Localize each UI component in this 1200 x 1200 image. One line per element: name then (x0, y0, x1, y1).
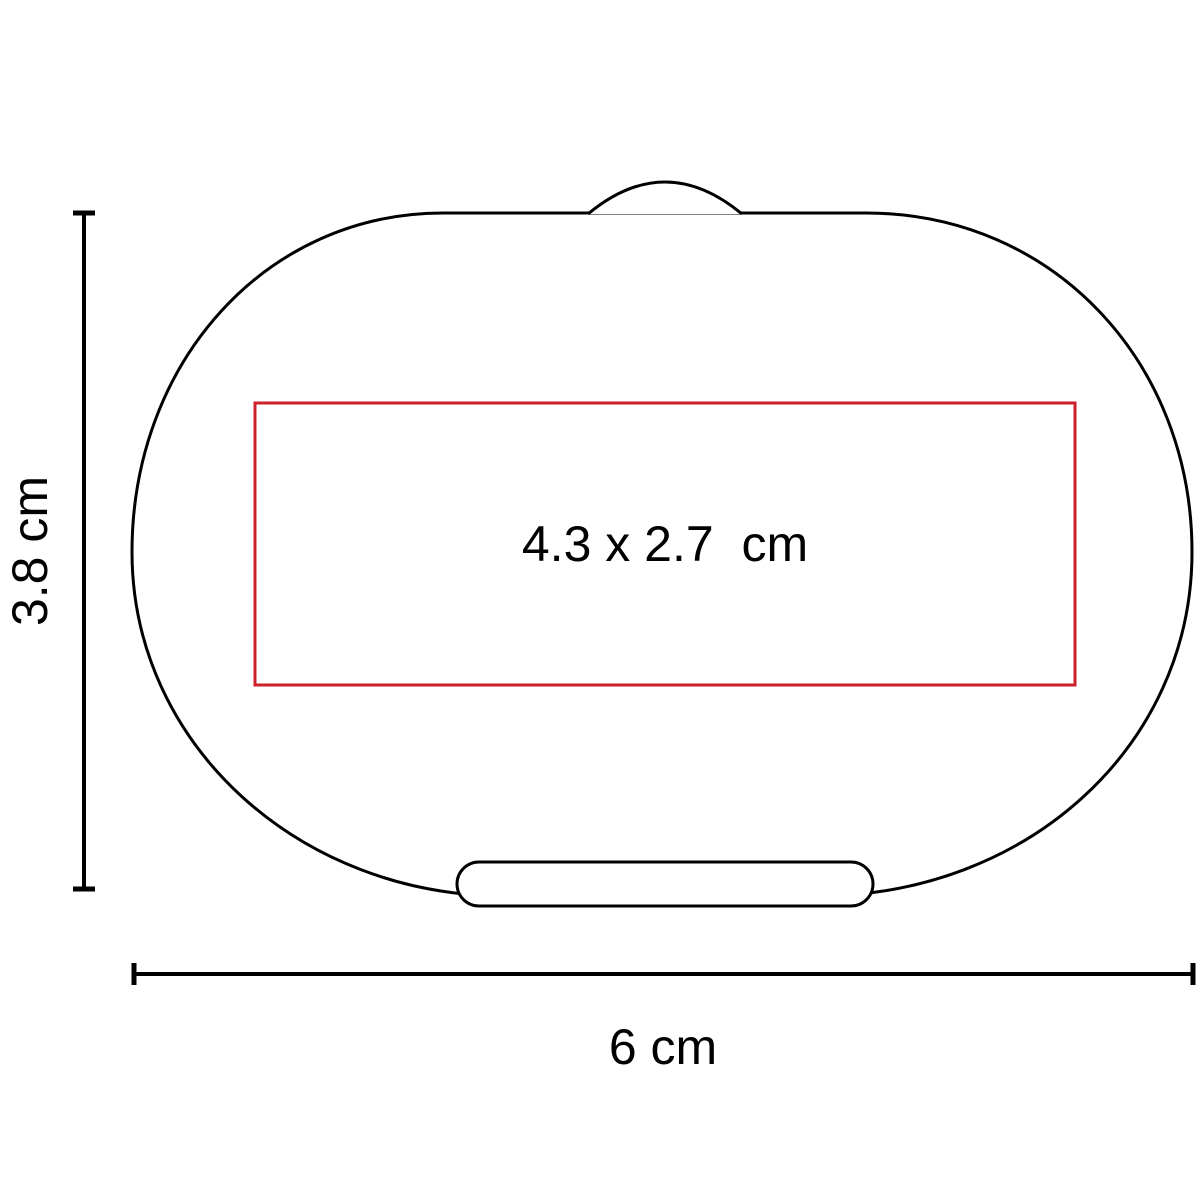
height-dimension-label: 3.8 cm (1, 476, 59, 626)
width-dimension-line (134, 963, 1193, 985)
latch-button (457, 862, 873, 906)
imprint-area-label: 4.3 x 2.7 cm (255, 403, 1075, 685)
dimension-diagram: 4.3 x 2.7 cm 3.8 cm 6 cm (0, 0, 1200, 1200)
height-dimension-line (73, 213, 95, 889)
hinge-bump (588, 182, 742, 214)
width-dimension-label: 6 cm (609, 1018, 717, 1076)
